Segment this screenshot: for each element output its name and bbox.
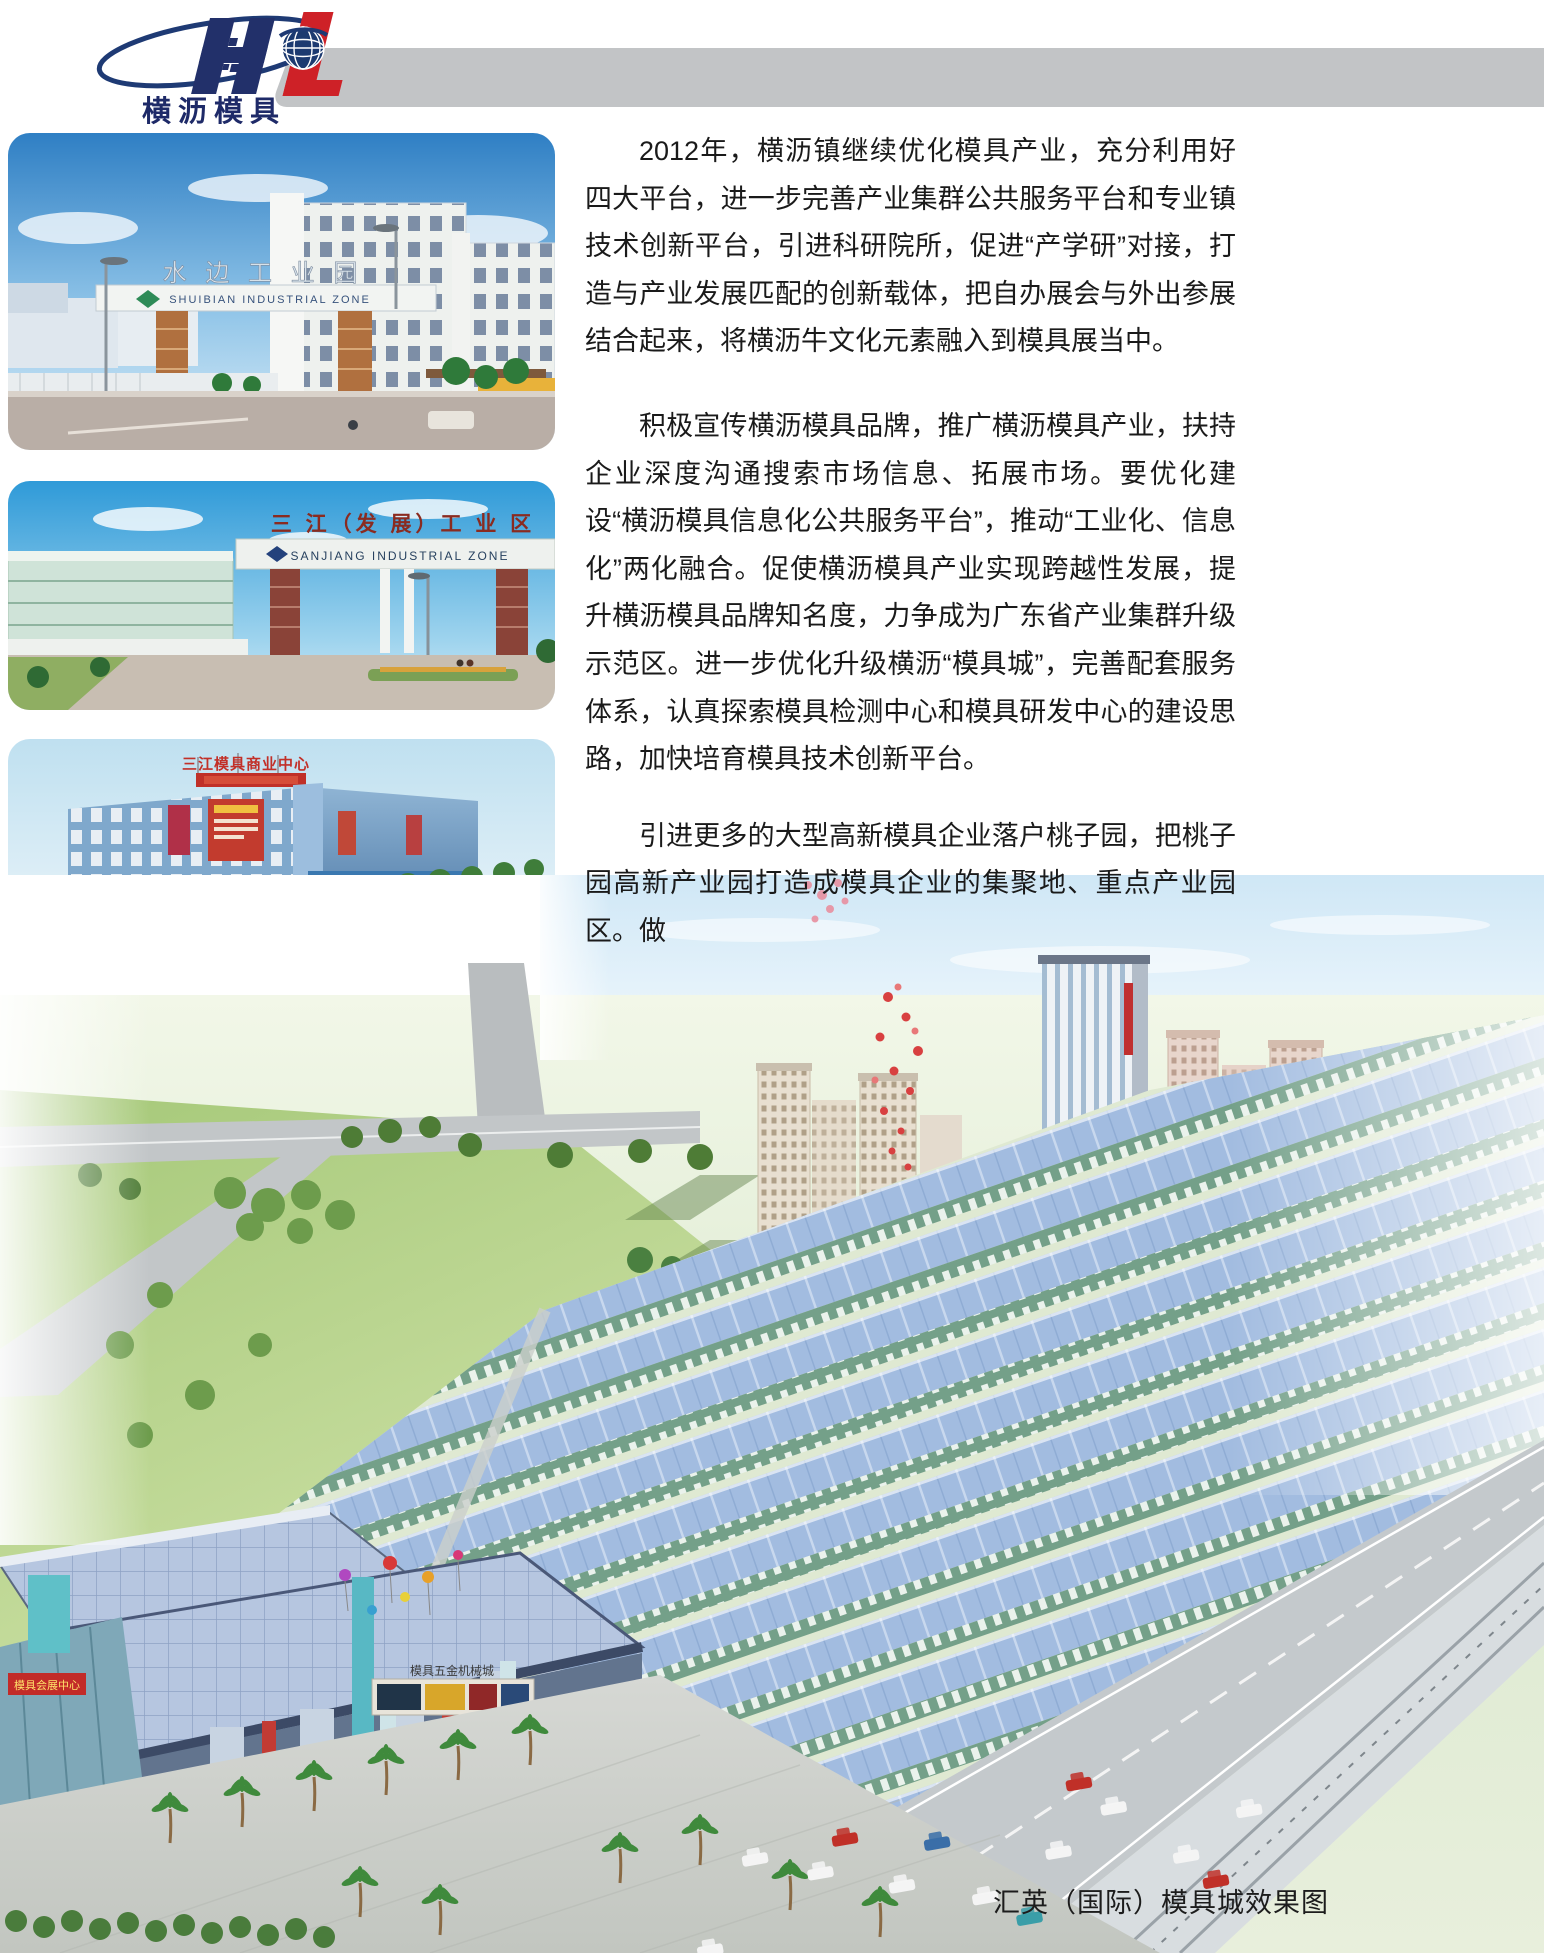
photo-sanjiang-industrial-zone: 三 江（发 展）工 业 区 SANJIANG INDUSTRIAL ZONE (8, 481, 555, 710)
gate-sign-en: SANJIANG INDUSTRIAL ZONE (291, 549, 510, 563)
hall-sign-text: 模具会展中心 (14, 1679, 80, 1692)
factory-buildings (8, 551, 248, 657)
mold-city-rendering: 模具会展中心 模具五金机械城 (0, 875, 1544, 1953)
photo-shuibian-industrial-zone: 水 边 工 业 园 SHUIBIAN INDUSTRIAL ZONE (8, 133, 555, 450)
paragraph-3: 引进更多的大型高新模具企业落户桃子园，把桃子园高新产业园打造成模具企业的集聚地、… (585, 813, 1236, 956)
gate-sign-cn: 三 江（发 展）工 业 区 (271, 512, 535, 536)
roof-sign-text: 三江模具商业中心 (182, 755, 310, 773)
paragraph-1: 2012年，横沥镇继续优化模具产业，充分利用好四大平台，进一步完善产业集群公共服… (585, 128, 1236, 366)
photo1-art: 水 边 工 业 园 SHUIBIAN INDUSTRIAL ZONE (8, 133, 555, 450)
rooftop-sign: 三江模具商业中心 (182, 753, 310, 787)
logo-letter-h (191, 18, 275, 94)
road (8, 391, 555, 450)
gate-sign-cn: 水 边 工 业 园 (163, 260, 364, 287)
article-text: 2012年，横沥镇继续优化模具产业，充分利用好四大平台，进一步完善产业集群公共服… (585, 128, 1236, 956)
rendering-caption: 汇英（国际）模具城效果图 (993, 1881, 1329, 1920)
gate-sign-en: SHUIBIAN INDUSTRIAL ZONE (169, 294, 371, 306)
logo-wordmark: 横沥模具 (96, 88, 332, 130)
header-banner (271, 48, 1544, 107)
left-fade (0, 985, 150, 1545)
gate-sign-text: 模具五金机械城 (410, 1663, 494, 1678)
rendering-art: 模具会展中心 模具五金机械城 (0, 875, 1544, 1953)
hall-teal-tower (28, 1575, 70, 1653)
paragraph-2: 积极宣传横沥模具品牌，推广横沥模具产业，扶持企业深度沟通搜索市场信息、拓展市场。… (585, 403, 1236, 784)
company-logo: 横沥模具 (84, 2, 344, 124)
photo2-art: 三 江（发 展）工 业 区 SANJIANG INDUSTRIAL ZONE (8, 481, 555, 710)
brochure-page: 横沥模具 (0, 0, 1544, 1953)
